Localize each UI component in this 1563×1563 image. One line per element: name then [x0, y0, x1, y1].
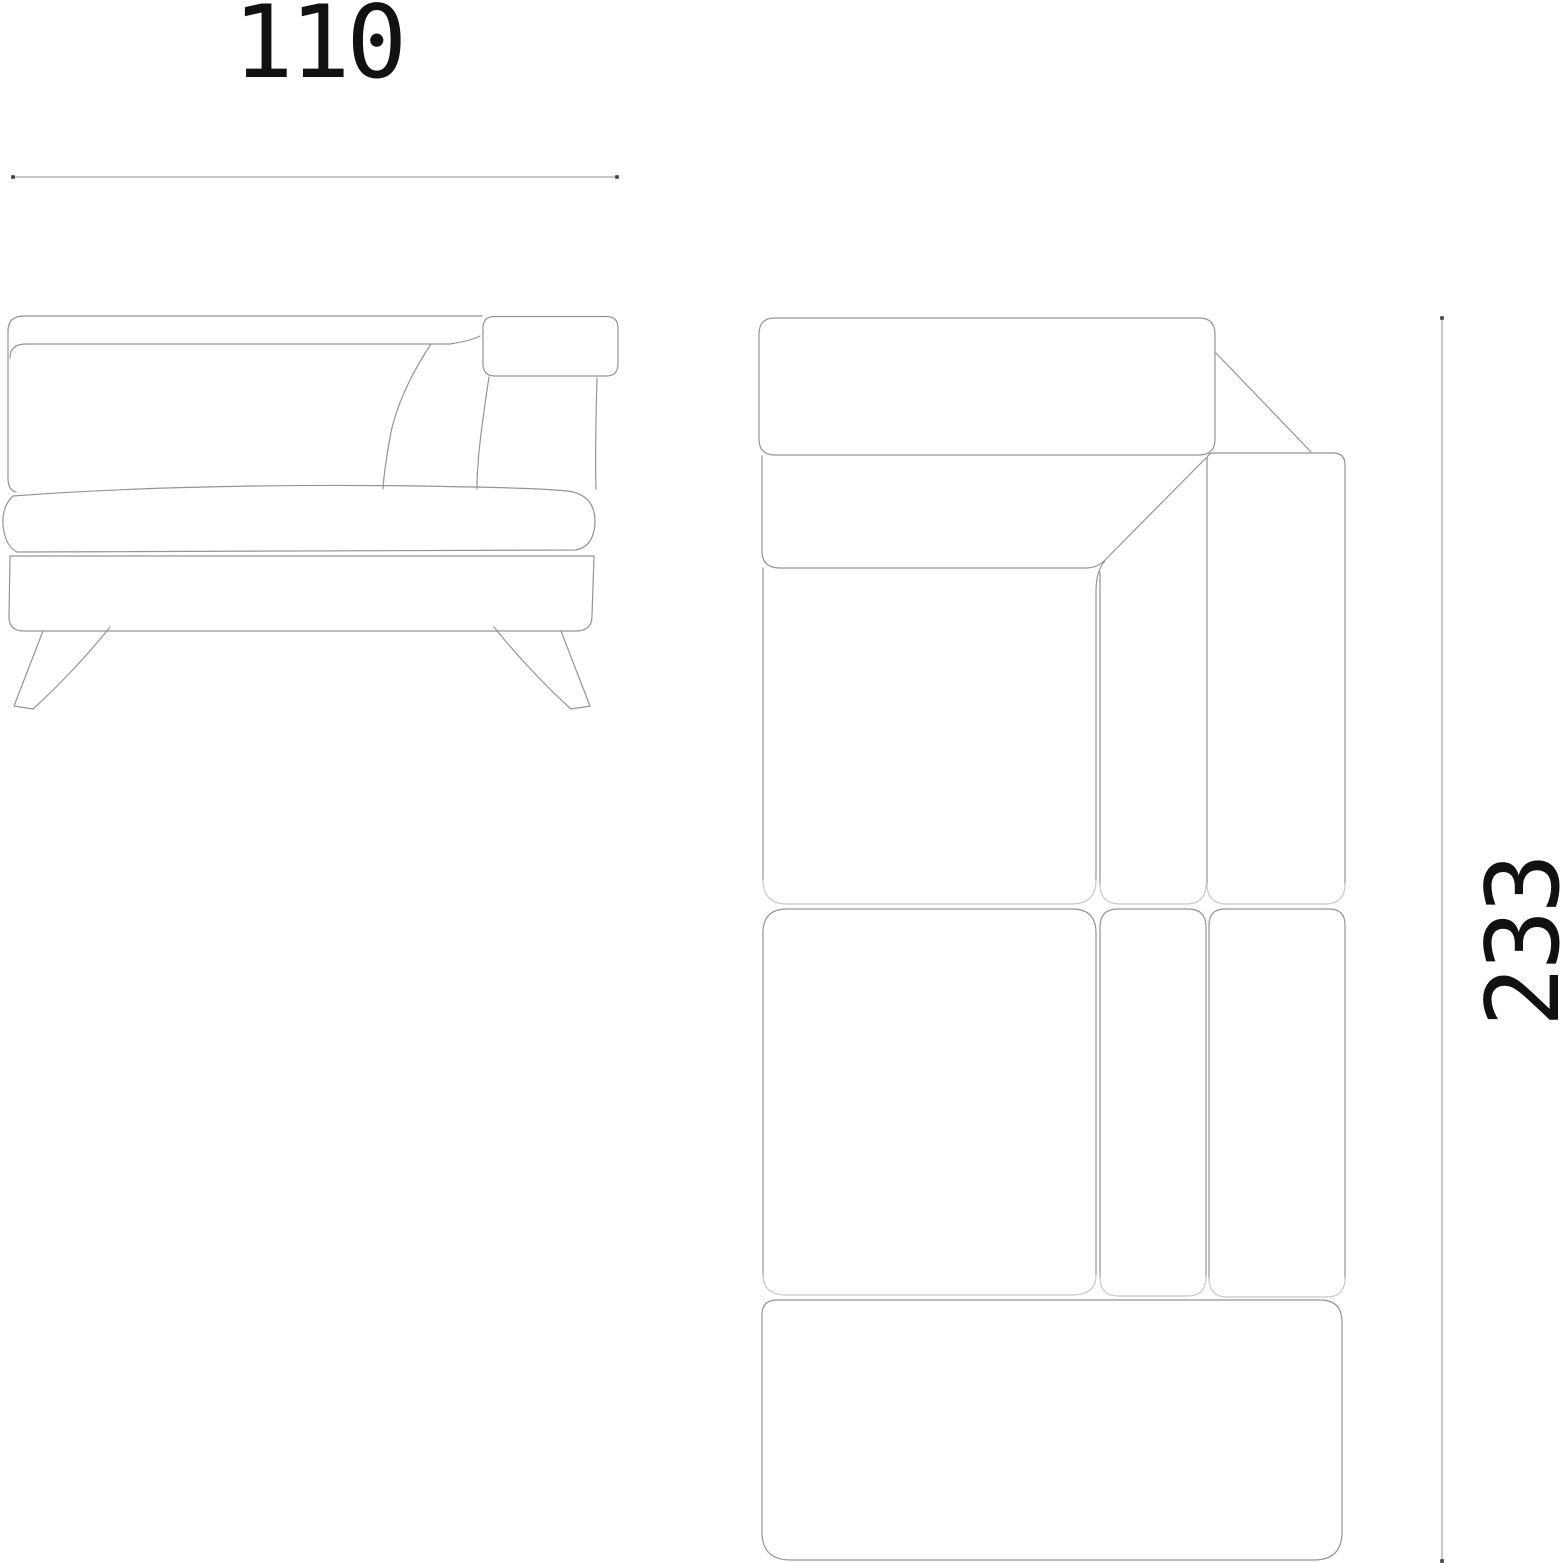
corner-strip-row1-bottom-seam — [1100, 884, 1206, 904]
corner-strip-row2-bottom-seam — [1100, 1277, 1206, 1296]
width-dimension-end-tick — [615, 175, 619, 179]
backrest-cushion-right-seam — [477, 377, 489, 489]
backrest-cushion-left-seam — [383, 344, 431, 489]
technical-drawing-canvas: 110 233 — [0, 0, 1563, 1563]
width-dimension-start-tick — [11, 175, 15, 179]
width-dimension-label: 110 — [233, 0, 403, 101]
front-right-leg — [494, 627, 590, 709]
armrest-row1-outline — [1207, 453, 1345, 884]
chaise-end-section — [762, 1300, 1342, 1560]
front-left-leg — [14, 627, 110, 709]
corner-outer-diagonal-seam — [1216, 353, 1311, 452]
back-panel-inner-seam — [10, 336, 480, 358]
backrest-band — [762, 456, 1206, 568]
armrest-row2-outline — [1209, 909, 1345, 1278]
armrest-row2-bottom-seam — [1209, 1278, 1345, 1297]
seat-cushion — [3, 485, 595, 552]
corner-strip-row2-outline — [1100, 909, 1206, 1277]
back-panel-outline — [8, 316, 482, 492]
depth-dimension: 233 — [1440, 316, 1563, 1563]
sofa-dimension-diagram: 110 233 — [0, 0, 1563, 1563]
front-elevation-view — [3, 316, 618, 709]
armrest-row1-bottom-seam — [1207, 884, 1345, 904]
top-plan-view — [759, 318, 1345, 1560]
depth-dimension-end-tick — [1440, 1559, 1444, 1563]
seat-row1-sides — [763, 561, 1105, 880]
seat-row2-bottom-seam — [763, 1275, 1096, 1295]
depth-dimension-start-tick — [1440, 316, 1444, 320]
headrest — [483, 317, 618, 377]
width-dimension: 110 — [11, 0, 619, 179]
seat-row1-bottom-seam — [763, 880, 1096, 904]
back-cushion — [759, 318, 1215, 455]
side-panel-edge — [596, 378, 597, 489]
seat-row2-outline — [763, 909, 1096, 1275]
base-frame — [9, 556, 594, 631]
depth-dimension-label: 233 — [1464, 857, 1563, 1027]
